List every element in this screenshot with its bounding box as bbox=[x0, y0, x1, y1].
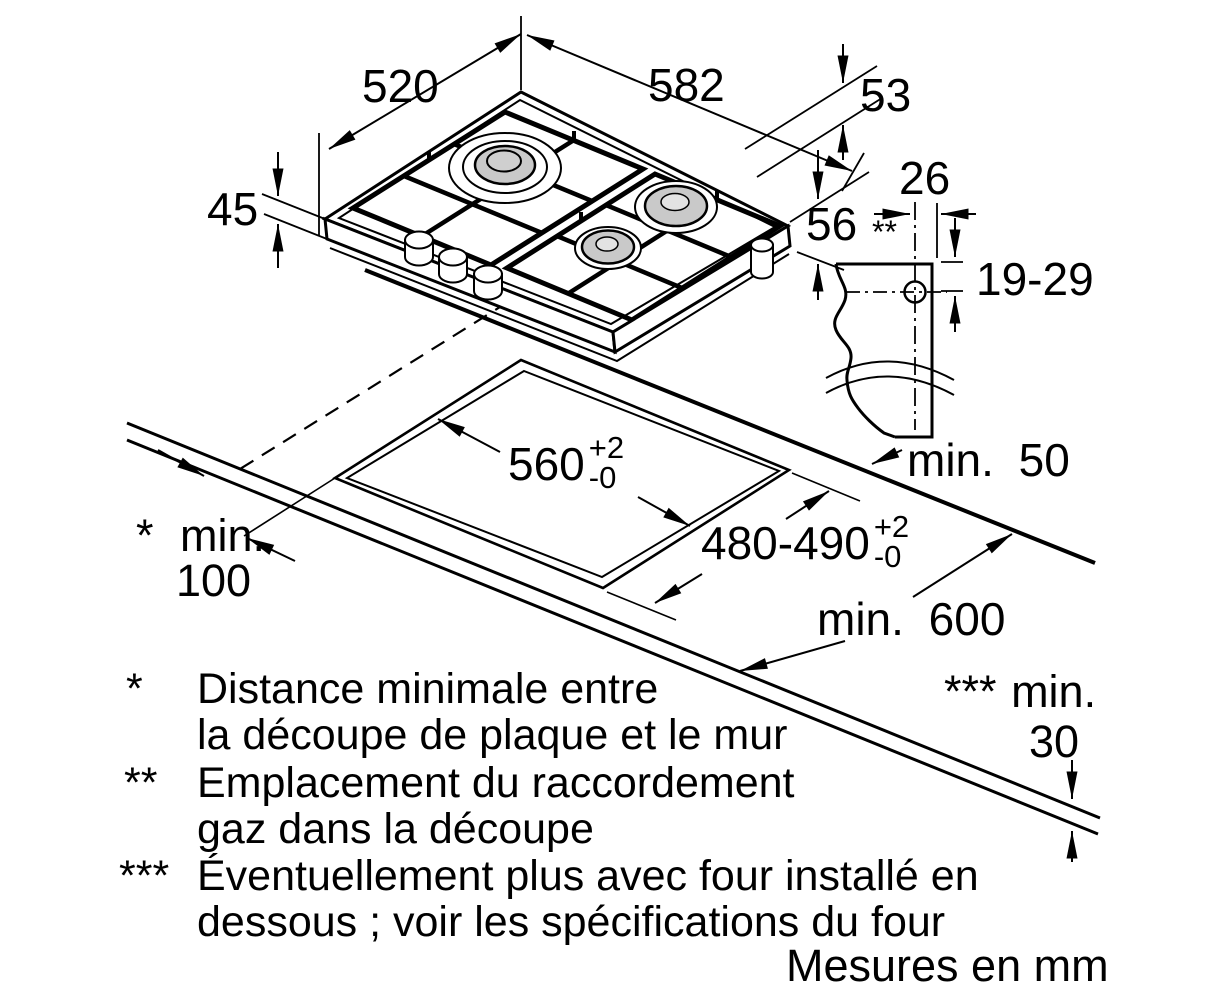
dim-hob-depth: 520 bbox=[362, 63, 439, 109]
dim-body-height: 45 bbox=[207, 186, 258, 232]
dim-wall-clearance: * min. bbox=[136, 513, 265, 558]
footnote-2-line-1: Emplacement du raccordement bbox=[197, 760, 795, 806]
footnote-3-line-1: Éventuellement plus avec four installé e… bbox=[197, 853, 979, 899]
dim-worktop-depth: min. 600 bbox=[817, 596, 1005, 642]
dim-oven-clearance: *** min. bbox=[944, 669, 1096, 714]
dim-cutout-depth-tolerance: +2 -0 bbox=[874, 512, 909, 573]
footnote-3-marker: *** bbox=[119, 853, 169, 899]
footnote-1: Distance minimale entre la découpe de pl… bbox=[197, 666, 787, 758]
hob-drawing bbox=[325, 92, 790, 361]
dim-connection-side: 56 bbox=[806, 201, 857, 247]
dim-cutout-depth: 480-490 +2 -0 bbox=[701, 520, 909, 581]
dim-connection-offset: 26 bbox=[899, 155, 950, 201]
dim-wall-clearance-word: min. bbox=[180, 510, 265, 561]
dim-cutout-depth-value: 480-490 bbox=[701, 520, 870, 566]
cutout-extension-right bbox=[792, 473, 860, 501]
dim-connection-drop: 19-29 bbox=[976, 256, 1094, 302]
footnote-3-line-2: dessous ; voir les spécifications du fou… bbox=[197, 899, 979, 945]
footnote-2-marker: ** bbox=[124, 760, 157, 806]
units-note: Mesures en mm bbox=[786, 943, 1109, 988]
footnote-1-marker: * bbox=[126, 666, 143, 712]
dim-edge-clearance: min. 50 bbox=[907, 437, 1070, 483]
hob-projection-dashed-line bbox=[240, 302, 508, 469]
installation-diagram: 520 582 53 45 56 ** 26 19-29 min. 50 560… bbox=[0, 0, 1223, 1000]
dim-cutout-width: 560 +2 -0 bbox=[508, 441, 624, 502]
hob-leg bbox=[751, 239, 773, 279]
burner-large bbox=[449, 133, 561, 203]
dim-oven-clearance-marker: *** bbox=[944, 666, 997, 717]
tolerance-minus: -0 bbox=[589, 463, 624, 493]
dim-wall-clearance-value: 100 bbox=[176, 558, 251, 603]
dim-cutout-width-value: 560 bbox=[508, 441, 585, 487]
footnote-2: Emplacement du raccordement gaz dans la … bbox=[197, 760, 795, 852]
detail-break-line-2 bbox=[826, 376, 954, 395]
hob-top-surface bbox=[325, 92, 788, 332]
dim-wall-clearance-marker: * bbox=[136, 510, 154, 561]
dim-oven-clearance-word: min. bbox=[1011, 666, 1096, 717]
footnote-1-line-1: Distance minimale entre bbox=[197, 666, 787, 712]
dim-oven-clearance-value: 30 bbox=[1029, 719, 1079, 764]
detail-profile-wavy-edge bbox=[835, 264, 895, 437]
dim-grate-height: 53 bbox=[860, 72, 911, 118]
dim-cutout-width-tolerance: +2 -0 bbox=[589, 433, 624, 494]
footnote-2-line-2: gaz dans la découpe bbox=[197, 806, 795, 852]
burner-small bbox=[575, 227, 641, 269]
dim-connection-side-marker: ** bbox=[872, 216, 897, 248]
dim-hob-width: 582 bbox=[648, 62, 725, 108]
tolerance-plus: +2 bbox=[874, 512, 909, 542]
footnote-3: Éventuellement plus avec four installé e… bbox=[197, 853, 979, 945]
footnote-1-line-2: la découpe de plaque et le mur bbox=[197, 712, 787, 758]
burner-medium bbox=[635, 181, 717, 233]
tolerance-minus: -0 bbox=[874, 542, 909, 572]
tolerance-plus: +2 bbox=[589, 433, 624, 463]
